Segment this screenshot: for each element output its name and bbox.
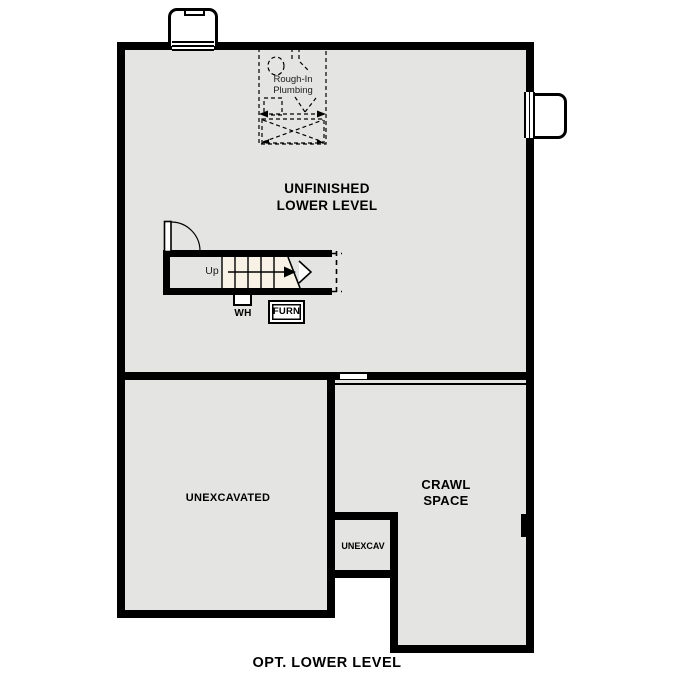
wall-crawl-bottom	[390, 645, 534, 653]
stair-wall-bottom	[163, 288, 332, 295]
room-label-unexcav: UNEXCAV	[334, 541, 392, 552]
room-crawl-space-lower	[398, 512, 526, 645]
wall-left	[117, 42, 125, 618]
wall-unexcav-top	[327, 512, 398, 520]
crawl-space-top-line	[335, 383, 526, 385]
stair-wall-top	[163, 250, 332, 257]
wall-vertical-divider	[327, 372, 335, 618]
vent-icon	[184, 9, 205, 16]
label-water-heater: WH	[231, 308, 255, 321]
furnace: FURN	[268, 300, 305, 324]
stair-treads	[222, 257, 288, 288]
water-heater	[233, 295, 252, 306]
room-label-crawl-space: CRAWL SPACE	[396, 477, 496, 509]
stair-wall-left	[163, 250, 170, 295]
room-label-unfinished-lower-level: UNFINISHED LOWER LEVEL	[227, 180, 427, 214]
crawl-access-opening	[340, 374, 367, 380]
label-stairs-up: Up	[201, 265, 223, 278]
plan-caption: OPT. LOWER LEVEL	[177, 655, 477, 671]
window-icon	[524, 92, 535, 138]
window-well-right	[534, 93, 567, 139]
furnace-label: FURN	[273, 306, 300, 318]
wall-unexcav-bottom	[327, 570, 398, 578]
wall-divider-main	[117, 372, 534, 380]
wall-pilaster	[521, 514, 528, 537]
wall-unexcav-right	[390, 512, 398, 653]
window-icon	[172, 41, 214, 51]
room-label-unexcavated: UNEXCAVATED	[128, 492, 328, 506]
label-rough-in-plumbing: Rough-In Plumbing	[260, 74, 326, 96]
floorplan-opt-lower-level: FURN	[0, 0, 687, 687]
wall-unexcavated-bottom	[117, 610, 335, 618]
